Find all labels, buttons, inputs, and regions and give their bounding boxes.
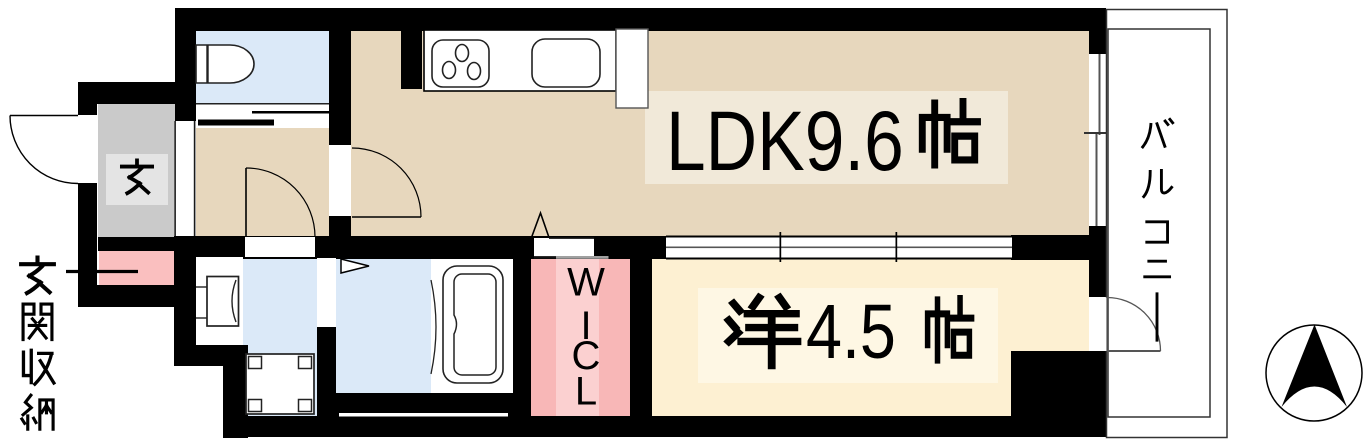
svg-text:L: L [575,370,597,414]
svg-text:4.5: 4.5 [806,290,896,376]
svg-text:LDK9.6: LDK9.6 [666,93,904,188]
svg-text:W: W [567,261,605,305]
